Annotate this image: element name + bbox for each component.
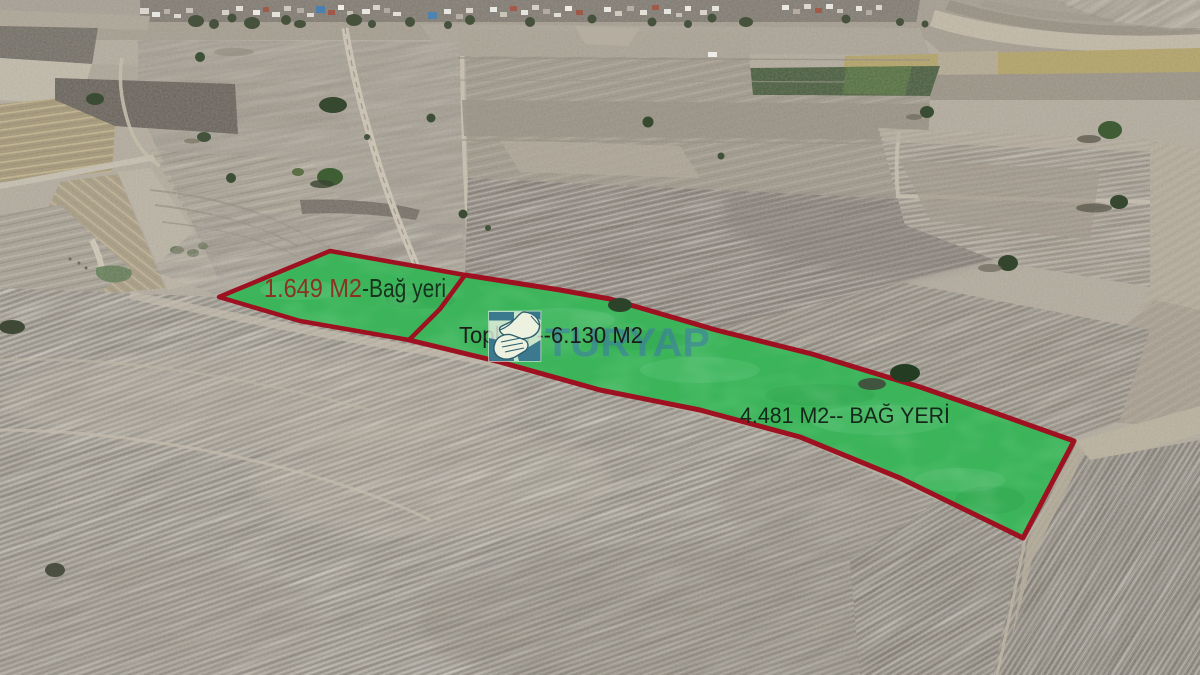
svg-text:1.649 M2: 1.649 M2 xyxy=(264,273,362,303)
svg-text:4.481 M2-- BAĞ YERİ: 4.481 M2-- BAĞ YERİ xyxy=(740,403,950,428)
svg-text:-Bağ yeri: -Bağ yeri xyxy=(362,273,446,303)
svg-text:Toplam --6.130 M2: Toplam --6.130 M2 xyxy=(459,322,643,348)
